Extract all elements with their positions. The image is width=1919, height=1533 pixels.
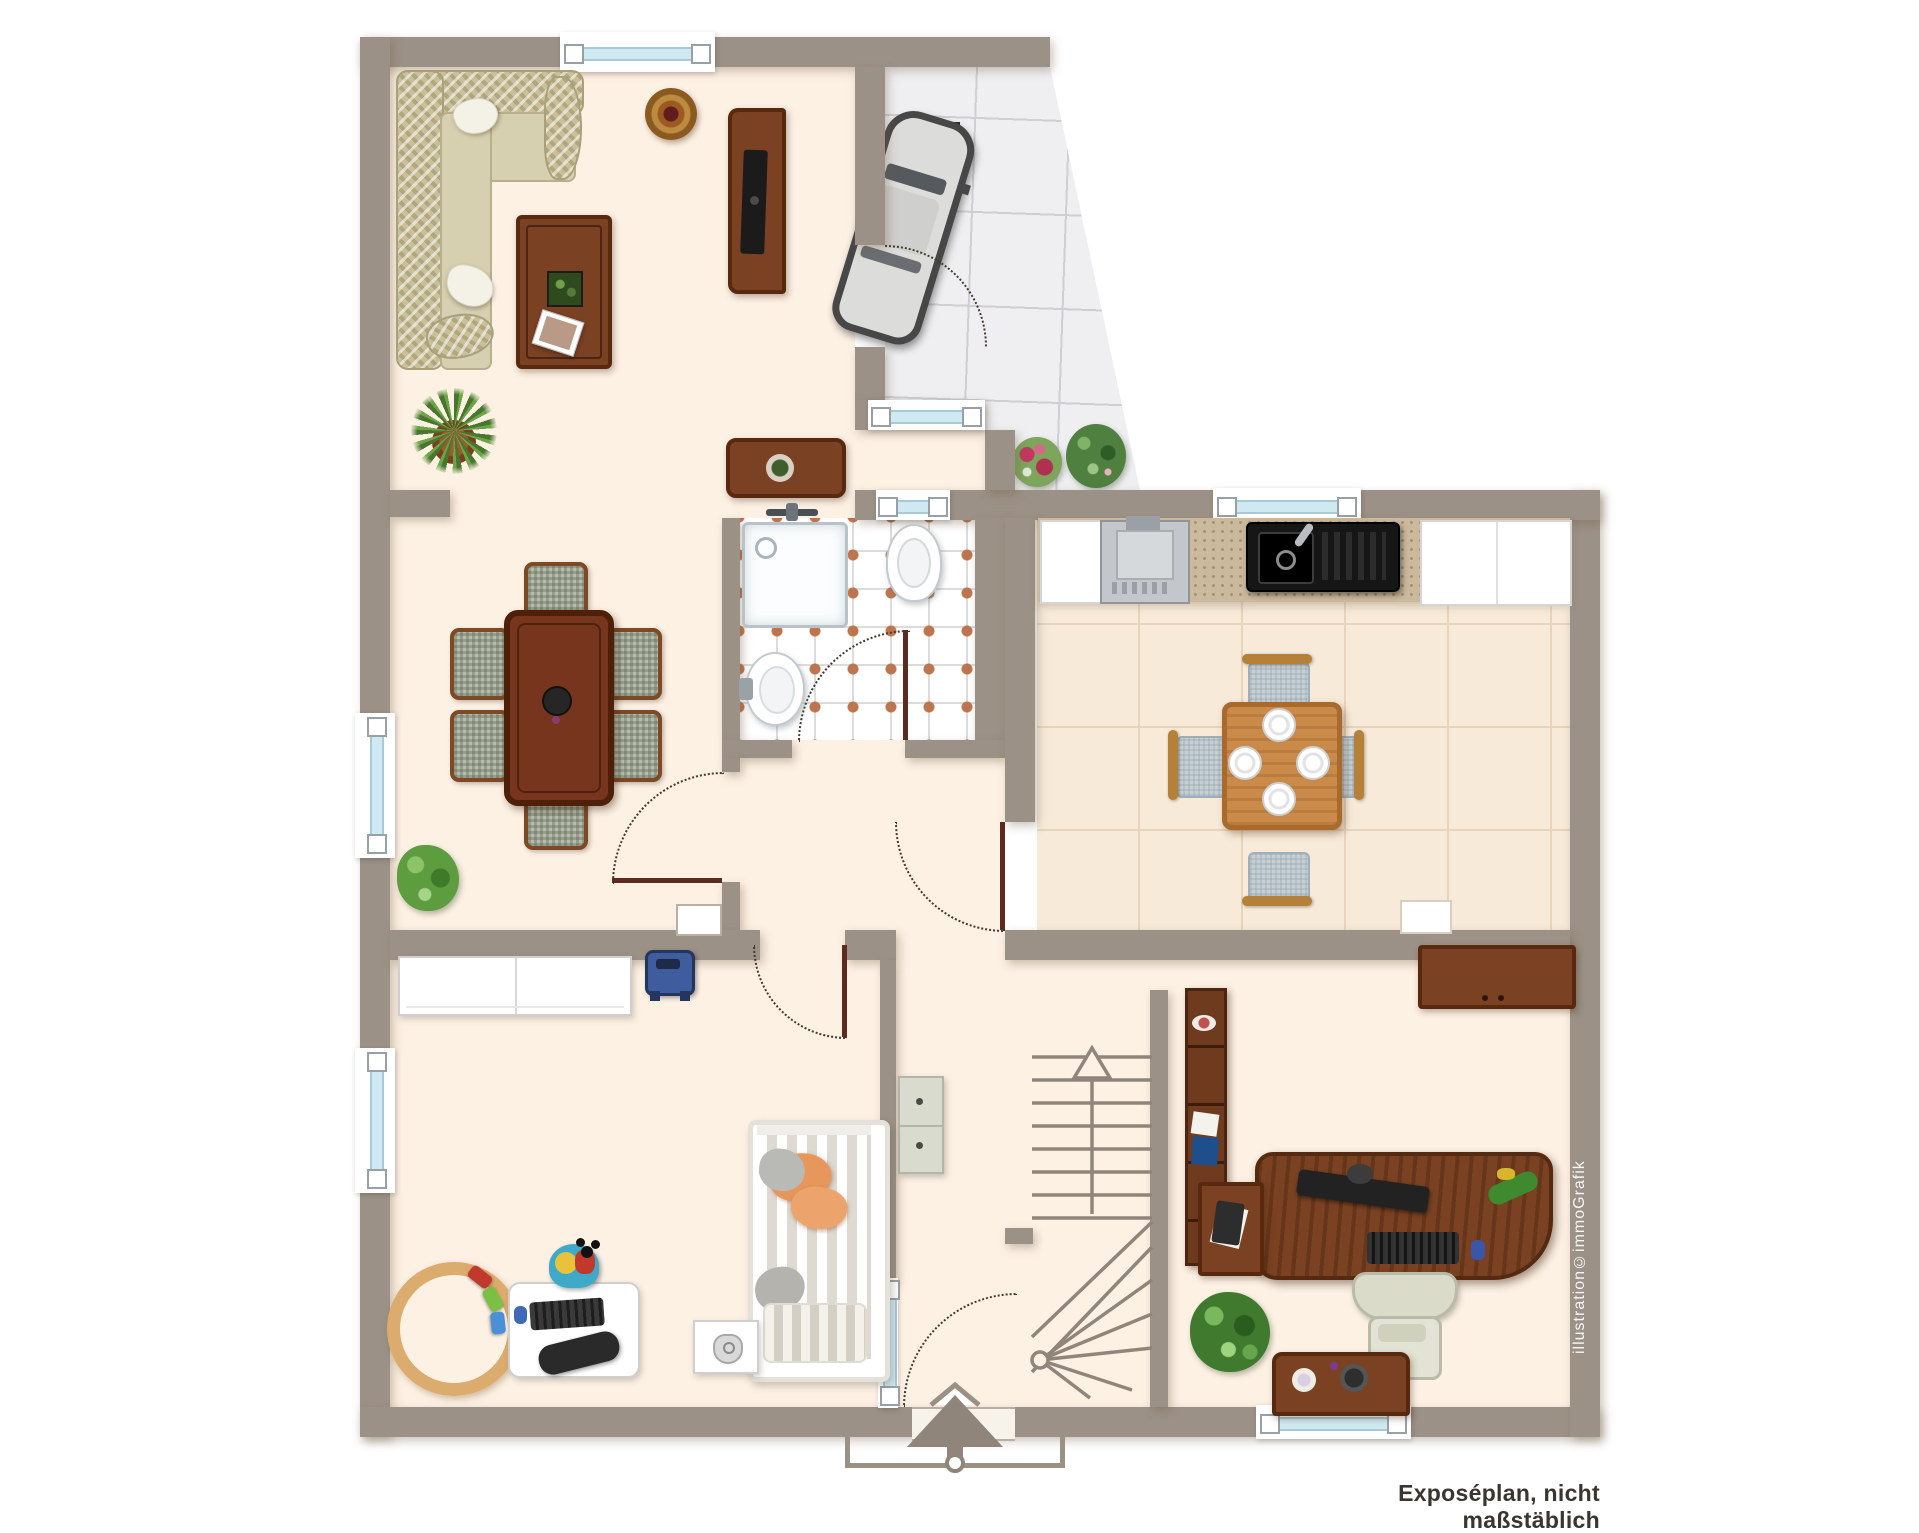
place-setting-right — [1296, 746, 1330, 780]
living-room-nook-floor — [855, 430, 985, 490]
sideboard-plant-dish — [766, 454, 794, 482]
dining-plant — [397, 845, 459, 911]
kids-keyboard — [529, 1297, 605, 1330]
basin-faucet — [739, 678, 753, 700]
staircase — [1032, 1042, 1152, 1407]
illustrator-watermark: illustration©immoGrafik — [1571, 1140, 1599, 1375]
wall-living-dining-stub — [390, 490, 450, 517]
kitchen-cabinet-left — [1040, 520, 1102, 604]
shelf-dish — [1192, 1015, 1216, 1031]
pillow-striped-foot — [763, 1303, 867, 1363]
black-notebook — [1211, 1200, 1245, 1245]
monitor-stand — [1347, 1164, 1373, 1184]
round-rug — [645, 88, 697, 140]
shelf-paper — [1191, 1111, 1220, 1136]
kids-wardrobe — [398, 956, 632, 1016]
window-bathroom — [876, 490, 950, 520]
shower-fixture — [766, 503, 818, 523]
window-carport-sill — [868, 400, 985, 430]
kitchen-door-leaf — [1000, 822, 1005, 930]
dining-door-leaf — [612, 878, 722, 883]
kitchen-chair-top-back — [1242, 654, 1312, 664]
kitchen-sink — [1246, 522, 1400, 592]
wall-office-left — [1150, 990, 1168, 1407]
office-mouse — [1471, 1240, 1485, 1260]
wall-bath-bottom-left — [722, 740, 792, 758]
wall-dining-east-stubbottom — [722, 882, 740, 930]
desk-accessory-yellow — [1497, 1168, 1515, 1180]
decor-plate — [1292, 1368, 1316, 1392]
tv-sideboard — [728, 108, 786, 294]
dining-chair-left-1 — [450, 628, 510, 700]
living-sideboard — [726, 438, 846, 498]
green-flower-bush — [1066, 424, 1126, 488]
kitchen-stove — [1100, 520, 1190, 604]
table-centerpiece — [542, 686, 572, 716]
shoe-cabinet — [898, 1076, 944, 1174]
wall-bath-right — [975, 518, 1005, 740]
sofa-corner-cushion — [544, 76, 582, 180]
wall-stair-stub — [1005, 1228, 1033, 1244]
place-setting-top — [1262, 708, 1296, 742]
shower-drain — [755, 537, 777, 559]
wall-bath-bottom-right — [905, 740, 1005, 758]
wall-niche — [676, 904, 722, 936]
wall-living-right-lower — [855, 347, 885, 400]
office-wall-sideboard — [1418, 945, 1576, 1009]
table-planter-box — [547, 271, 583, 307]
hall-door-leaf — [842, 945, 847, 1037]
wall-dining-east-stubtop — [722, 758, 740, 772]
bathroom-door-leaf — [903, 630, 908, 740]
device-mat — [693, 1320, 759, 1374]
mickey-play-chair — [543, 1236, 605, 1292]
place-setting-bottom — [1262, 782, 1296, 816]
washbasin — [745, 652, 805, 726]
window-kids-left — [355, 1048, 395, 1193]
decor-dot — [1330, 1362, 1338, 1370]
dining-table — [504, 610, 614, 806]
kitchen-chair-bottom-back — [1242, 896, 1312, 906]
kids-desk — [508, 1282, 640, 1378]
coffee-table — [516, 215, 612, 369]
dining-chair-left-2 — [450, 710, 510, 782]
shower — [742, 522, 848, 628]
office-plant — [1190, 1292, 1270, 1372]
red-flower-bush — [1012, 437, 1062, 487]
office-desk — [1255, 1152, 1553, 1280]
wall-kitchen-left — [1005, 518, 1035, 822]
window-dining-left — [355, 713, 395, 858]
wall-kids-top-right — [845, 930, 896, 960]
office-keyboard — [1367, 1232, 1459, 1264]
game-steering-wheel — [536, 1329, 623, 1378]
wall-bath-left — [722, 518, 740, 740]
office-side-table — [1198, 1182, 1264, 1276]
kitchen-chair-right-back — [1354, 730, 1364, 800]
kids-mouse — [514, 1306, 527, 1324]
shelf-binder-blue — [1191, 1136, 1219, 1166]
blue-toy-car — [645, 950, 695, 996]
floor-plan-canvas: Exposéplan, nicht maßstäblich illustrati… — [0, 0, 1919, 1533]
window-kitchen — [1213, 488, 1361, 522]
wall-carport-stub — [985, 430, 1015, 490]
yucca-plant — [408, 388, 498, 478]
sink-drainboard — [1322, 532, 1386, 580]
kids-bed — [748, 1120, 890, 1382]
office-low-sideboard — [1272, 1352, 1410, 1416]
place-setting-left — [1228, 746, 1262, 780]
kitchen-cabinets-right — [1420, 520, 1572, 606]
decor-bowl — [1340, 1364, 1368, 1392]
wall-living-right-upper — [855, 67, 885, 245]
kitchen-radiator — [1400, 900, 1452, 934]
plan-caption: Exposéplan, nicht maßstäblich — [1270, 1480, 1600, 1533]
kitchen-chair-bottom — [1248, 852, 1310, 902]
entrance-arrow — [875, 1383, 1035, 1473]
kitchen-chair-left — [1176, 736, 1226, 798]
train-car-blue — [490, 1311, 506, 1334]
kitchen-chair-left-back — [1168, 730, 1178, 800]
toilet — [886, 524, 942, 602]
stove-hood — [1126, 516, 1160, 530]
window-living-top — [560, 32, 715, 72]
